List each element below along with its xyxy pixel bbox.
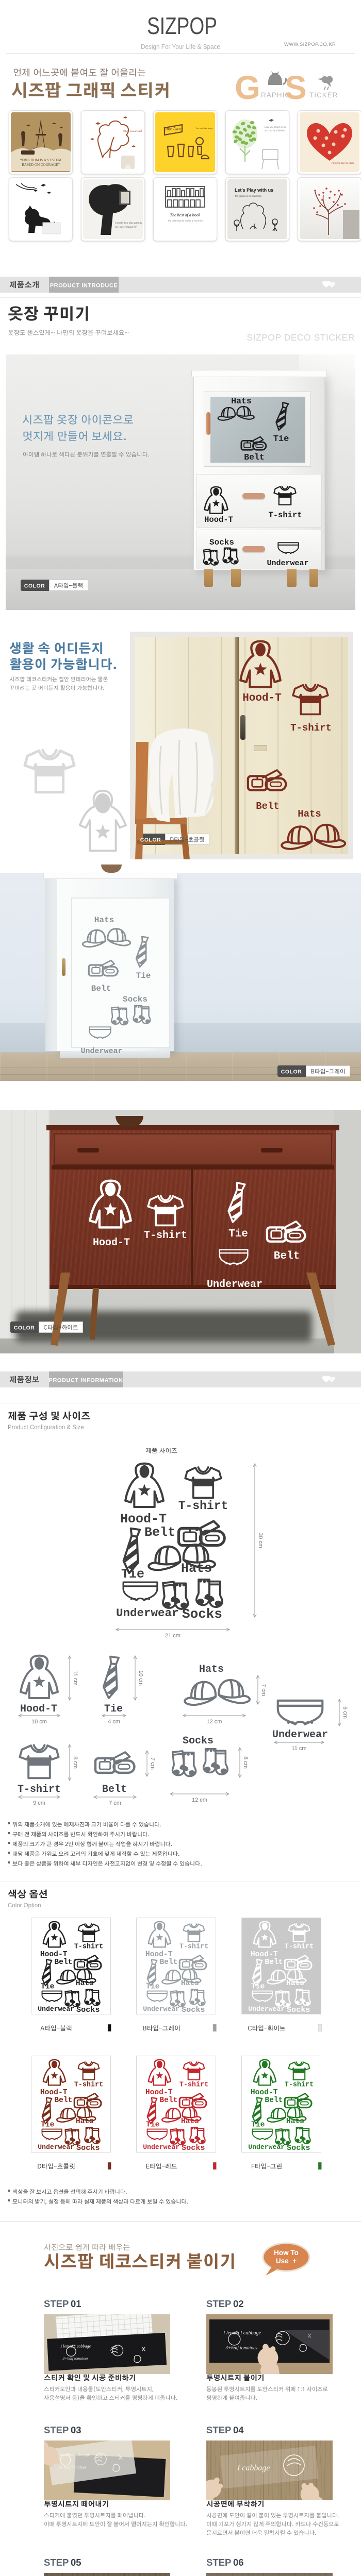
- svg-text:Yes, the evolution for: Yes, the evolution for: [115, 226, 137, 229]
- svg-text:Hood-T: Hood-T: [93, 1237, 130, 1249]
- svg-text:STEP: STEP: [44, 2425, 69, 2435]
- svg-text:Hood-T: Hood-T: [204, 515, 233, 524]
- svg-text:Tie: Tie: [228, 1228, 248, 1240]
- svg-text:Socks: Socks: [209, 538, 234, 547]
- svg-text:SIZPOP: SIZPOP: [147, 12, 217, 39]
- svg-text:STEP: STEP: [44, 2298, 69, 2309]
- svg-text:Belt: Belt: [244, 452, 265, 462]
- svg-text:PRODUCT INFORMATION: PRODUCT INFORMATION: [49, 1378, 123, 1384]
- svg-text:Belt: Belt: [91, 984, 111, 993]
- svg-text:COLOR: COLOR: [24, 583, 45, 589]
- svg-text:When you are with me: When you are with me: [123, 130, 146, 132]
- svg-text:11 cm: 11 cm: [291, 1745, 306, 1752]
- svg-text:7 cm: 7 cm: [109, 1800, 121, 1806]
- svg-text:S: S: [285, 69, 307, 106]
- svg-text:3+half tomatoes: 3+half tomatoes: [59, 2465, 87, 2470]
- svg-text:Hood-T: Hood-T: [242, 692, 282, 704]
- svg-text:T-shirt: T-shirt: [144, 1230, 187, 1242]
- svg-text:Socks: Socks: [123, 995, 147, 1004]
- svg-text:STEP: STEP: [206, 2298, 231, 2309]
- svg-text:04: 04: [233, 2425, 244, 2435]
- svg-text:“FREEDOM IS A SYSTEM: “FREEDOM IS A SYSTEM: [20, 158, 62, 162]
- svg-text:BASED ON COURAGE”: BASED ON COURAGE”: [22, 163, 60, 167]
- svg-text:You can take away: You can take away: [195, 127, 212, 129]
- svg-text:Take Away: Take Away: [163, 126, 183, 131]
- svg-text:Hats: Hats: [231, 396, 252, 406]
- svg-text:Tie: Tie: [136, 971, 151, 980]
- svg-text:03: 03: [71, 2425, 81, 2435]
- svg-text:Let's Play with us: Let's Play with us: [235, 188, 273, 193]
- svg-text:11 cm: 11 cm: [72, 1670, 78, 1685]
- svg-text:05: 05: [71, 2557, 81, 2568]
- svg-text:6 cm: 6 cm: [342, 1706, 348, 1719]
- svg-text:WWW.SIZPOP.CO.KR: WWW.SIZPOP.CO.KR: [284, 42, 336, 47]
- svg-text:G: G: [235, 69, 260, 106]
- svg-text:9 cm: 9 cm: [33, 1800, 45, 1806]
- svg-text:Belt: Belt: [256, 801, 280, 812]
- svg-text:How To: How To: [274, 2249, 299, 2257]
- svg-text:The garden to be beautifully: The garden to be beautifully: [235, 195, 262, 197]
- svg-text:Underwear: Underwear: [267, 559, 308, 568]
- svg-text:Color Option: Color Option: [8, 1903, 41, 1909]
- svg-text:SIZPOP DECO STICKER: SIZPOP DECO STICKER: [247, 332, 355, 343]
- svg-text:02: 02: [233, 2298, 244, 2309]
- svg-text:The best thing for my life & F: The best thing for my life & Favorites: [168, 219, 203, 222]
- svg-text:30 cm: 30 cm: [257, 1533, 264, 1548]
- svg-text:10 cm: 10 cm: [31, 1719, 47, 1725]
- svg-text:STEP: STEP: [44, 2557, 69, 2568]
- svg-text:I cabbage: I cabbage: [237, 2464, 270, 2472]
- svg-text:3+half tomatoes: 3+half tomatoes: [62, 2356, 89, 2361]
- svg-text:STEP: STEP: [206, 2557, 231, 2568]
- svg-text:7 cm: 7 cm: [260, 1684, 267, 1696]
- svg-text:I am the best that gateway: I am the best that gateway: [114, 222, 142, 225]
- svg-text:7 cm: 7 cm: [150, 1757, 156, 1770]
- svg-text:Use +: Use +: [276, 2257, 297, 2265]
- svg-text:4 cm: 4 cm: [108, 1719, 120, 1725]
- svg-text:COLOR: COLOR: [281, 1069, 302, 1075]
- svg-text:T-shirt: T-shirt: [268, 511, 302, 520]
- svg-text:Product Configuration & Size: Product Configuration & Size: [8, 1425, 84, 1431]
- svg-text:01: 01: [71, 2298, 81, 2309]
- svg-text:Hats: Hats: [298, 808, 321, 820]
- svg-text:Tie: Tie: [104, 1703, 123, 1715]
- svg-text:COLOR: COLOR: [14, 1325, 35, 1331]
- svg-text:8 cm: 8 cm: [72, 1756, 78, 1769]
- svg-text:Hood-T: Hood-T: [20, 1703, 57, 1715]
- svg-text:I lemon I cabbage: I lemon I cabbage: [60, 2344, 91, 2349]
- svg-text:3+half tomatoes: 3+half tomatoes: [225, 2345, 257, 2351]
- svg-text:Underwear: Underwear: [80, 1047, 122, 1056]
- svg-text:T-shirt: T-shirt: [18, 1784, 61, 1795]
- svg-text:Hats: Hats: [94, 916, 114, 925]
- svg-text:TICKER: TICKER: [309, 91, 338, 99]
- svg-text:PRODUCT INTRODUCE: PRODUCT INTRODUCE: [50, 283, 118, 289]
- svg-text:I lemon I cabbage: I lemon I cabbage: [223, 2330, 261, 2336]
- svg-text:T-shirt: T-shirt: [290, 722, 332, 734]
- svg-text:Socks: Socks: [183, 1735, 214, 1747]
- svg-text:Flowers have to make: Flowers have to make: [331, 162, 355, 165]
- svg-text:Belt: Belt: [102, 1784, 127, 1795]
- svg-text:STEP: STEP: [206, 2425, 231, 2435]
- svg-text:8 cm: 8 cm: [242, 1756, 249, 1769]
- svg-text:The best of a book: The best of a book: [170, 213, 201, 217]
- svg-text:Love you based on we the: Love you based on we the: [265, 126, 290, 128]
- svg-text:Hats: Hats: [199, 1664, 224, 1675]
- svg-text:12 cm: 12 cm: [192, 1797, 207, 1803]
- svg-text:12 cm: 12 cm: [207, 1719, 222, 1725]
- svg-text:Tie: Tie: [273, 434, 289, 444]
- svg-text:Underwear: Underwear: [272, 1729, 328, 1741]
- svg-text:Design For Your Life & Space: Design For Your Life & Space: [141, 43, 220, 50]
- svg-text:Belt: Belt: [274, 1250, 300, 1262]
- svg-text:21 cm: 21 cm: [165, 1633, 180, 1639]
- svg-text:Underwear: Underwear: [207, 1279, 262, 1291]
- svg-text:06: 06: [233, 2557, 244, 2568]
- svg-text:I lemon I cabbage: I lemon I cabbage: [57, 2452, 90, 2457]
- svg-text:and fast for a lifetime: and fast for a lifetime: [265, 129, 285, 132]
- svg-text:COLOR: COLOR: [140, 837, 161, 843]
- svg-text:10 cm: 10 cm: [138, 1670, 144, 1686]
